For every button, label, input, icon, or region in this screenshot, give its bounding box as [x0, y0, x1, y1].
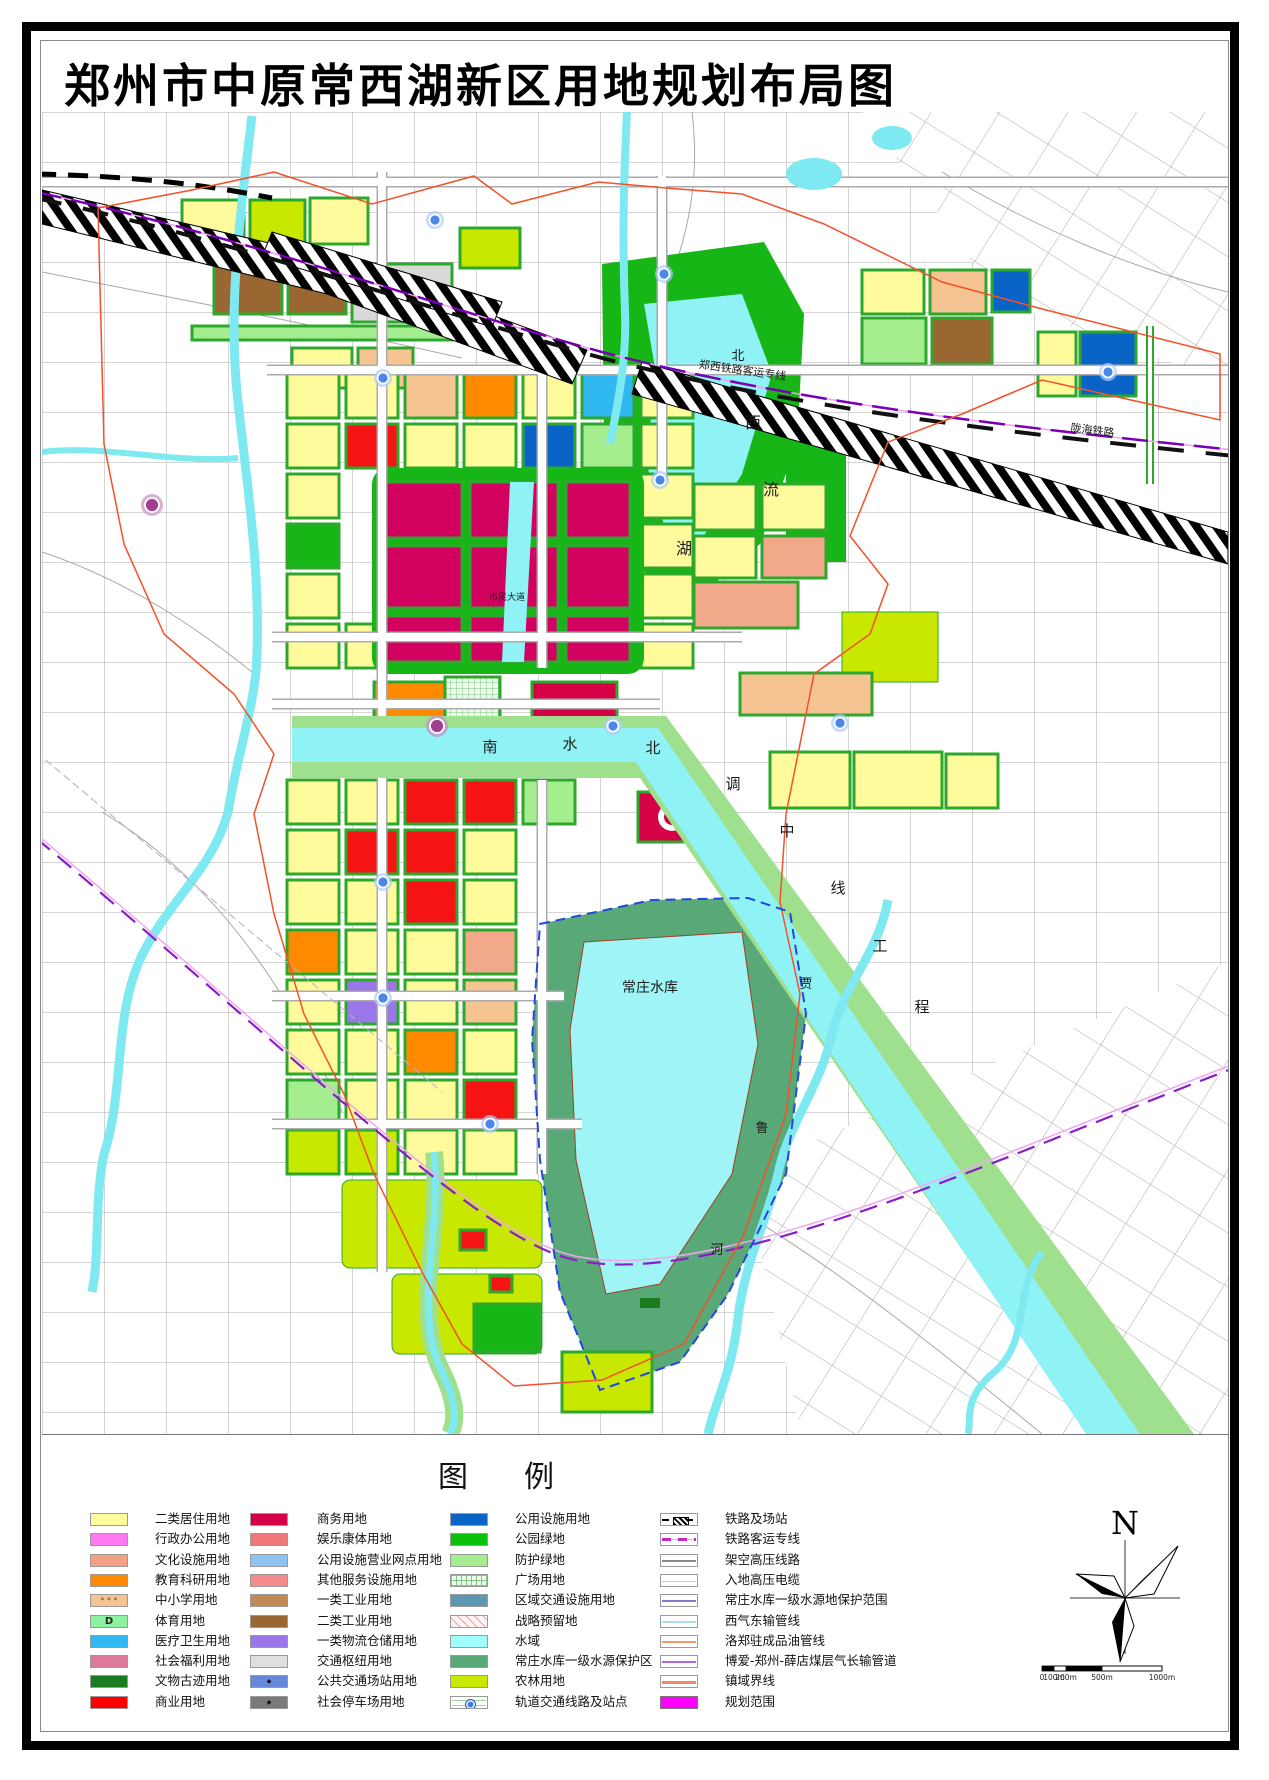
land-use-block	[405, 980, 457, 1024]
legend-swatch	[90, 1675, 128, 1688]
legend-swatch	[250, 1554, 288, 1567]
metro-station-icon	[378, 373, 389, 384]
legend-swatch: ◆	[250, 1675, 288, 1688]
legend-swatch	[250, 1574, 288, 1587]
land-use-block	[762, 536, 826, 578]
legend-swatch	[450, 1696, 488, 1709]
land-use-block	[946, 754, 998, 808]
map-label: 常庄水库	[622, 979, 678, 996]
land-use-block	[770, 752, 850, 808]
land-use-block	[854, 752, 942, 808]
legend-item-label: 社会福利用地	[155, 1654, 230, 1668]
legend-item-label: 医疗卫生用地	[155, 1634, 230, 1648]
land-use-block	[405, 830, 457, 874]
metro-station-icon	[430, 719, 444, 733]
land-use-block	[405, 374, 457, 418]
land-use-block	[405, 1080, 457, 1124]
land-use-block	[310, 198, 368, 244]
metro-station-icon	[145, 498, 159, 512]
legend-item-label: 行政办公用地	[155, 1532, 230, 1546]
land-use-block	[740, 673, 872, 715]
legend-item-label: 常庄水库一级水源地保护范围	[725, 1593, 888, 1607]
legend-item-label: 铁路客运专线	[725, 1532, 800, 1546]
legend-item-label: 水域	[515, 1634, 540, 1648]
land-use-block	[464, 980, 516, 1024]
legend-item-label: 社会停车场用地	[317, 1695, 405, 1709]
legend-item-label: 常庄水库一级水源保护区	[515, 1654, 653, 1668]
land-use-block	[287, 1080, 339, 1124]
land-use-block	[405, 1030, 457, 1074]
metro-station-icon	[378, 877, 389, 888]
land-use-block	[641, 574, 693, 618]
legend-swatch	[450, 1574, 488, 1587]
legend-swatch	[250, 1594, 288, 1607]
land-use-block	[287, 880, 339, 924]
land-use-block	[694, 536, 756, 578]
legend-item-label: 广场用地	[515, 1573, 565, 1587]
legend-title: 图例	[438, 1452, 610, 1496]
legend-swatch	[660, 1513, 698, 1526]
legend-item-label: 一类工业用地	[317, 1593, 392, 1607]
scale-bar-label: 1000m	[1149, 1673, 1175, 1682]
land-use-block	[464, 930, 516, 974]
legend-item-label: 体育用地	[155, 1614, 205, 1628]
legend-swatch: D	[90, 1615, 128, 1628]
legend-item-label: 二类工业用地	[317, 1614, 392, 1628]
land-use-block	[346, 424, 398, 468]
land-use-block	[523, 424, 575, 468]
land-use-block	[346, 1080, 398, 1124]
legend-item-label: 文化设施用地	[155, 1553, 230, 1567]
land-use-block	[862, 318, 926, 364]
legend-item-label: 架空高压线路	[725, 1553, 800, 1567]
legend-swatch	[450, 1615, 488, 1628]
legend-swatch	[660, 1554, 698, 1567]
map-label: 贾	[799, 977, 812, 992]
land-use-block	[287, 574, 339, 618]
land-use-block	[287, 930, 339, 974]
land-use-block	[346, 830, 398, 874]
legend-swatch	[90, 1696, 128, 1709]
legend-item-label: 公园绿地	[515, 1532, 565, 1546]
land-use-block	[405, 424, 457, 468]
land-use-block	[992, 270, 1030, 312]
map-canvas: 北郑西铁路客运专线陇海铁路西流湖南水北调中线工程常庄水库贾鲁河市民大道	[42, 112, 1228, 1435]
legend-swatch	[450, 1594, 488, 1607]
legend-swatch	[660, 1574, 698, 1587]
map-label: 水	[562, 735, 577, 753]
legend-item-label: 博爱-郑州-薛店煤层气长输管道	[725, 1654, 897, 1668]
legend-swatch	[250, 1533, 288, 1546]
legend-item-label: 公共交通场站用地	[317, 1674, 417, 1688]
legend-item-label: 公用设施营业网点用地	[317, 1553, 442, 1567]
planning-map-page: { "title": "郑州市中原常西湖新区用地规划布局图", "legend"…	[0, 0, 1269, 1780]
land-use-block	[346, 780, 398, 824]
land-use-block	[932, 318, 992, 364]
land-use-block	[694, 582, 798, 628]
land-use-map: 北郑西铁路客运专线陇海铁路西流湖南水北调中线工程常庄水库贾鲁河市民大道	[42, 112, 1228, 1434]
legend-swatch	[660, 1594, 698, 1607]
legend-swatch	[90, 1574, 128, 1587]
legend-swatch	[450, 1513, 488, 1526]
legend-item-label: 战略预留地	[515, 1614, 578, 1628]
metro-station-icon	[485, 1119, 496, 1130]
land-use-block	[464, 830, 516, 874]
compass-north-label: N	[1111, 1504, 1139, 1542]
land-use-block	[464, 424, 516, 468]
legend-item-label: 文物古迹用地	[155, 1674, 230, 1688]
legend-swatch	[660, 1615, 698, 1628]
legend-item-label: 西气东输管线	[725, 1614, 800, 1628]
map-label: 南	[482, 738, 497, 756]
compass-and-scale: N 0100m200m500m1000m	[1022, 1494, 1182, 1694]
legend-swatch	[450, 1675, 488, 1688]
legend-item-label: 公用设施用地	[515, 1512, 590, 1526]
legend: 图例 二类居住用地行政办公用地文化设施用地教育科研用地* * *中小学用地D体育…	[42, 1434, 1228, 1731]
land-use-block	[287, 474, 339, 518]
land-use-block	[464, 1130, 516, 1174]
land-use-block	[287, 424, 339, 468]
legend-swatch	[250, 1615, 288, 1628]
legend-item-label: 商务用地	[317, 1512, 367, 1526]
land-use-block	[464, 374, 516, 418]
land-use-block	[862, 270, 924, 314]
legend-item-label: 区域交通设施用地	[515, 1593, 615, 1607]
map-label: 线	[830, 879, 845, 897]
legend-swatch	[90, 1513, 128, 1526]
legend-swatch	[660, 1675, 698, 1688]
legend-item-label: 交通枢纽用地	[317, 1654, 392, 1668]
compass-rose-icon	[1070, 1540, 1180, 1662]
metro-station-icon	[430, 215, 441, 226]
land-use-block	[523, 780, 575, 824]
legend-swatch	[450, 1635, 488, 1648]
legend-swatch	[660, 1696, 698, 1709]
legend-item-label: 农林用地	[515, 1674, 565, 1688]
land-use-block	[287, 524, 339, 568]
legend-swatch	[660, 1533, 698, 1546]
land-use-block	[287, 830, 339, 874]
legend-item-label: 娱乐康体用地	[317, 1532, 392, 1546]
scale-bar-label: 200m	[1055, 1673, 1077, 1682]
metro-station-icon	[655, 475, 666, 486]
legend-swatch	[90, 1533, 128, 1546]
legend-swatch	[250, 1635, 288, 1648]
map-label: 中	[779, 822, 794, 840]
legend-swatch	[450, 1554, 488, 1567]
legend-swatch	[250, 1655, 288, 1668]
page-title: 郑州市中原常西湖新区用地规划布局图	[64, 50, 897, 116]
legend-swatch	[250, 1513, 288, 1526]
legend-item-label: 中小学用地	[155, 1593, 218, 1607]
metro-station-icon	[659, 269, 670, 280]
cbd-park	[372, 468, 644, 674]
scale-bar-label: 500m	[1091, 1673, 1113, 1682]
land-use-block	[694, 484, 756, 530]
land-use-block	[405, 780, 457, 824]
map-label: 工	[872, 937, 887, 955]
legend-item-label: 洛郑驻成品油管线	[725, 1634, 825, 1648]
legend-swatch	[90, 1554, 128, 1567]
land-use-block	[287, 780, 339, 824]
map-label: 鲁	[755, 1121, 768, 1136]
land-use-block	[287, 980, 339, 1024]
land-use-block	[460, 1230, 486, 1250]
legend-swatch	[450, 1533, 488, 1546]
land-use-block	[641, 624, 693, 668]
land-use-block	[474, 1304, 540, 1352]
map-label: 北	[645, 739, 660, 757]
land-use-block	[582, 424, 634, 468]
metro-station-icon	[608, 721, 619, 732]
legend-item-label: 一类物流仓储用地	[317, 1634, 417, 1648]
land-use-block	[287, 374, 339, 418]
legend-swatch	[660, 1655, 698, 1668]
land-use-block	[405, 880, 457, 924]
map-label: 市民大道	[489, 591, 525, 603]
land-use-block	[464, 1030, 516, 1074]
legend-item-label: 镇域界线	[725, 1674, 775, 1688]
land-use-block	[490, 1276, 512, 1292]
map-label: 西	[745, 413, 761, 432]
land-use-block	[464, 880, 516, 924]
legend-swatch	[660, 1635, 698, 1648]
legend-item-label: 商业用地	[155, 1695, 205, 1709]
map-label: 河	[710, 1243, 723, 1258]
legend-item-label: 二类居住用地	[155, 1512, 230, 1526]
legend-item-label: 规划范围	[725, 1695, 775, 1709]
land-use-block	[346, 1030, 398, 1074]
land-use-block	[287, 1130, 339, 1174]
metro-station-icon	[378, 993, 389, 1004]
land-use-block	[460, 228, 520, 268]
map-label: 湖	[676, 539, 692, 558]
map-label: 程	[914, 998, 929, 1016]
map-label: 流	[763, 480, 779, 499]
legend-swatch	[90, 1635, 128, 1648]
metro-station-icon	[1103, 367, 1114, 378]
metro-station-icon	[835, 718, 846, 729]
land-use-block	[464, 780, 516, 824]
legend-item-label: 防护绿地	[515, 1553, 565, 1567]
land-use-block	[582, 374, 634, 418]
legend-item-label: 轨道交通线路及站点	[515, 1695, 628, 1709]
legend-item-label: 教育科研用地	[155, 1573, 230, 1587]
legend-swatch	[90, 1655, 128, 1668]
land-use-block	[287, 624, 339, 668]
land-use-block	[346, 930, 398, 974]
legend-item-label: 入地高压电缆	[725, 1573, 800, 1587]
map-label: 调	[725, 775, 740, 793]
legend-swatch	[450, 1655, 488, 1668]
legend-swatch: * * *	[90, 1594, 128, 1607]
scale-bar	[1042, 1666, 1162, 1671]
land-use-block	[405, 930, 457, 974]
legend-item-label: 铁路及场站	[725, 1512, 788, 1526]
legend-item-label: 其他服务设施用地	[317, 1573, 417, 1587]
legend-swatch: ◆	[250, 1696, 288, 1709]
